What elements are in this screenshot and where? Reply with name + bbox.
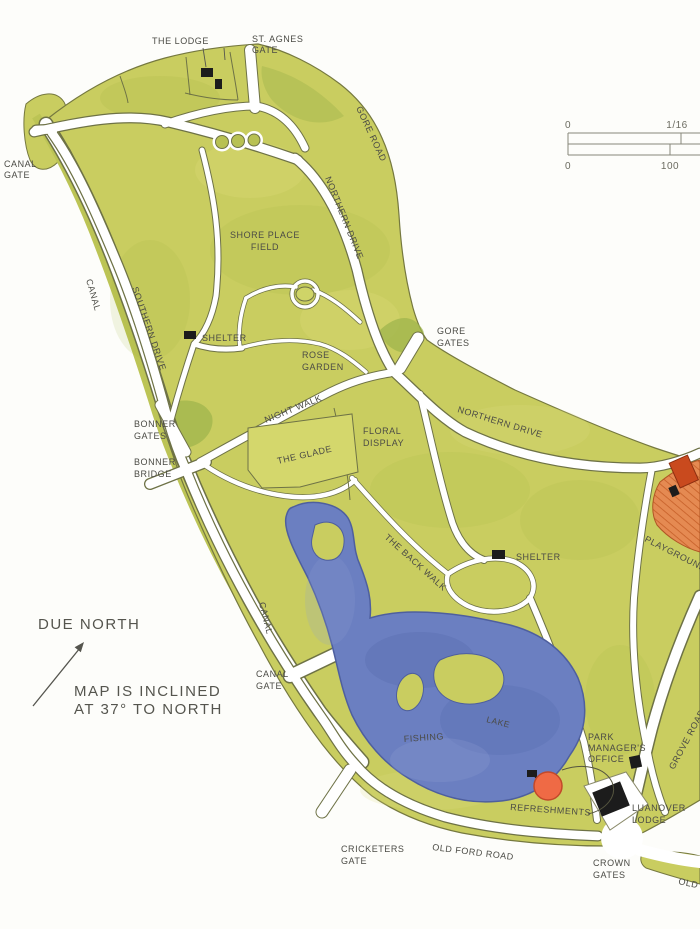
label-crown-gates-1: CROWN	[593, 858, 631, 868]
label-bonner-gates-2: GATES	[134, 431, 167, 441]
label-park-managers-office-1: PARK	[588, 732, 614, 742]
label-shore-place-field-2: FIELD	[251, 242, 279, 252]
scale-miles-end: 1/16	[666, 120, 687, 131]
label-luanover-lodge-2: LODGE	[632, 815, 666, 825]
label-park-managers-office-3: OFFICE	[588, 754, 624, 764]
map-canvas: THE LODGE ST. AGNES GATE CANAL GATE GORE…	[0, 0, 700, 929]
label-floral-display-2: DISPLAY	[363, 438, 404, 448]
label-canal-gate-lower-1: CANAL	[256, 669, 289, 679]
label-canal-gate-upper-1: CANAL	[4, 159, 37, 169]
label-canal-gate-lower-2: GATE	[256, 681, 282, 691]
lake-inlet-green	[312, 522, 345, 560]
label-st-agnes-gate-2: GATE	[252, 45, 278, 55]
scale-yards-end: 100	[661, 161, 679, 172]
shelter-east-icon	[492, 550, 505, 559]
scale-yards-start: 0	[565, 161, 571, 172]
label-map-inclined-1: MAP IS INCLINED	[74, 683, 221, 700]
park-map: THE LODGE ST. AGNES GATE CANAL GATE GORE…	[0, 0, 700, 929]
label-rose-garden-2: GARDEN	[302, 362, 344, 372]
scale-miles-start: 0	[565, 120, 571, 131]
label-park-managers-office-2: MANAGER'S	[588, 743, 646, 753]
label-crown-gates-2: GATES	[593, 870, 626, 880]
shelter-west-icon	[184, 331, 196, 339]
label-bonner-gates-1: BONNER	[134, 419, 176, 429]
label-luanover-lodge-1: LUANOVER	[632, 803, 686, 813]
label-due-north: DUE NORTH	[38, 616, 140, 633]
lake-island-large	[434, 654, 504, 704]
label-canal-gate-upper-2: GATE	[4, 170, 30, 180]
lodge-building-1	[201, 68, 213, 77]
label-gore-gates-2: GATES	[437, 338, 470, 348]
label-shelter-west: SHELTER	[202, 333, 247, 343]
label-map-inclined-2: AT 37° TO NORTH	[74, 701, 223, 718]
scale-bar	[568, 133, 700, 155]
label-the-lodge: THE LODGE	[152, 36, 209, 46]
label-canal-upper: CANAL	[84, 278, 103, 312]
label-gore-gates-1: GORE	[437, 326, 466, 336]
label-shelter-east: SHELTER	[516, 552, 561, 562]
label-old-ford-road: OLD FORD ROAD	[432, 842, 515, 862]
rose-garden-bed	[296, 287, 314, 301]
flower-beds	[213, 131, 264, 152]
label-cricketers-gate-1: CRICKETERS	[341, 844, 404, 854]
label-shore-place-field-1: SHORE PLACE	[230, 230, 300, 240]
label-rose-garden-1: ROSE	[302, 350, 330, 360]
label-bonner-bridge-2: BRIDGE	[134, 469, 172, 479]
label-bonner-bridge-1: BONNER	[134, 457, 176, 467]
label-floral-display-1: FLORAL	[363, 426, 401, 436]
label-st-agnes-gate-1: ST. AGNES	[252, 34, 303, 44]
label-cricketers-gate-2: GATE	[341, 856, 367, 866]
lodge-building-2	[215, 79, 222, 89]
